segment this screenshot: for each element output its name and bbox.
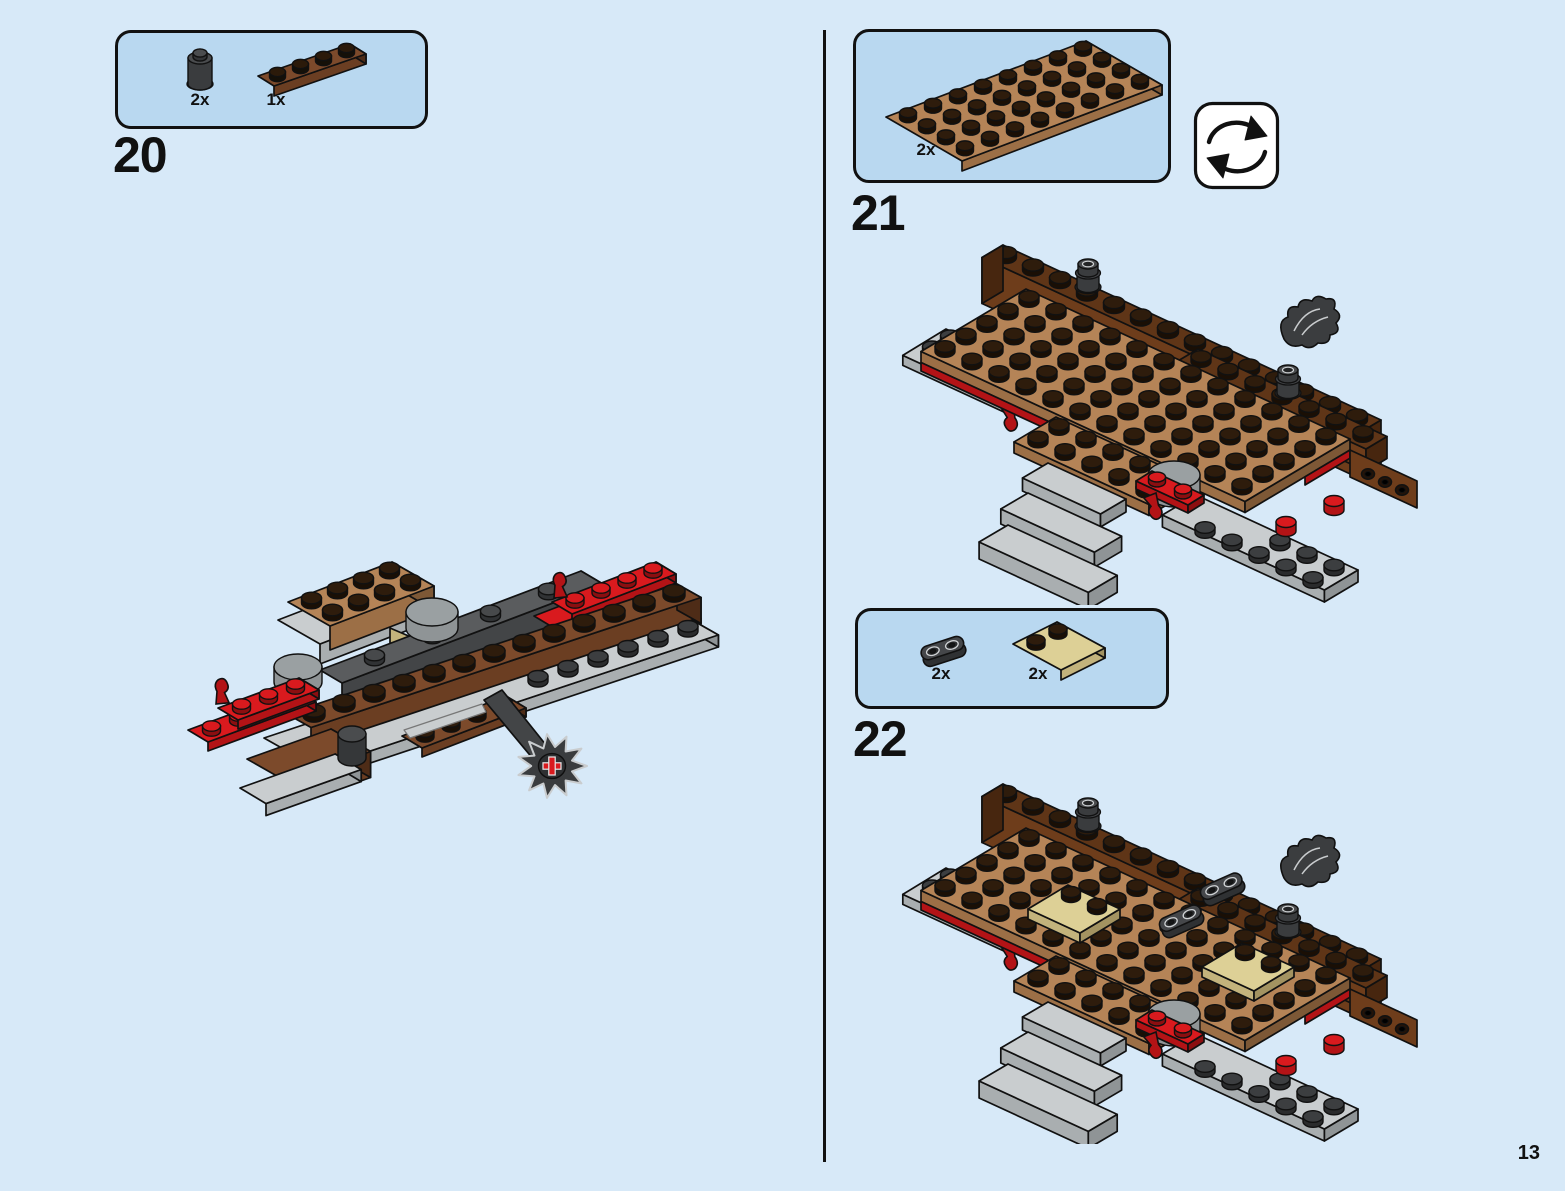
part-count: 2x — [902, 140, 950, 160]
asm20-svg — [152, 524, 722, 869]
step-20-number: 20 — [113, 130, 167, 180]
part-count: 2x — [176, 90, 224, 110]
step-20-assembly-image — [152, 524, 722, 869]
t20a-svg — [179, 36, 223, 94]
part-count: 2x — [917, 664, 965, 684]
column-divider — [823, 30, 826, 1162]
part-count: 2x — [1014, 664, 1062, 684]
step-21-number: 21 — [851, 188, 905, 238]
part-thumb-1x1-round-brick — [179, 36, 223, 94]
roticon-svg — [1193, 101, 1281, 191]
rotate-model-icon — [1193, 101, 1281, 191]
step-22-number: 22 — [853, 714, 907, 764]
asm22-svg — [898, 770, 1458, 1144]
asm21-svg — [898, 231, 1458, 605]
step-22-assembly-image — [898, 770, 1458, 1144]
part-count: 1x — [252, 90, 300, 110]
page-number: 13 — [1490, 1142, 1540, 1165]
instruction-page: 2x 1x 20 2x 21 2x 2x 22 13 — [0, 0, 1565, 1191]
step-21-assembly-image — [898, 231, 1458, 605]
